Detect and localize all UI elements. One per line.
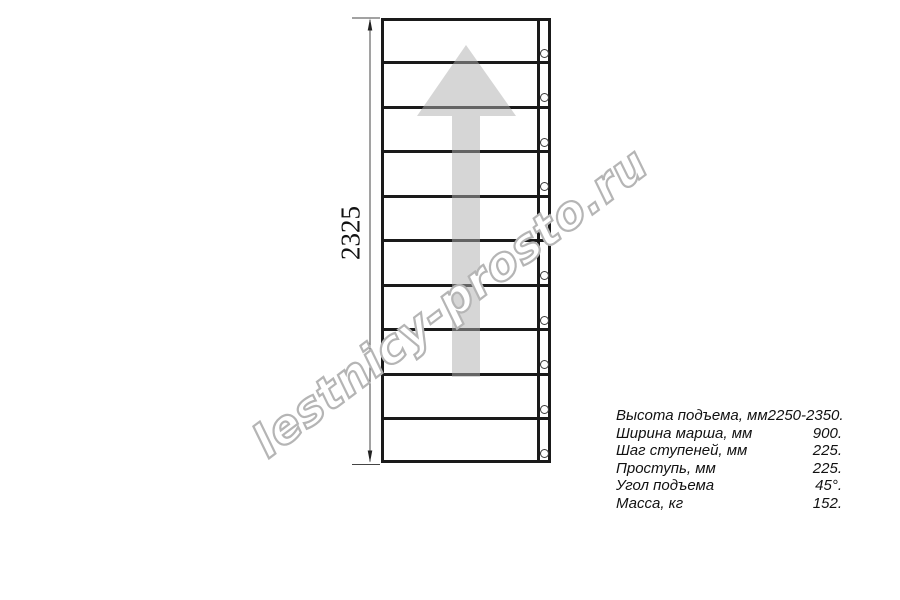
spec-row: Ширина марша, мм900. bbox=[616, 425, 842, 443]
stringer-hole-icon bbox=[540, 316, 549, 325]
spec-value: 225. bbox=[813, 460, 842, 478]
tread-line bbox=[384, 150, 548, 153]
spec-row: Масса, кг152. bbox=[616, 495, 842, 513]
tread-line bbox=[384, 106, 548, 109]
stringer-hole-icon bbox=[540, 93, 549, 102]
dimension-label: 2325 bbox=[336, 206, 367, 260]
spec-row: Шаг ступеней, мм225. bbox=[616, 442, 842, 460]
spec-value: 2250-2350. bbox=[768, 407, 844, 425]
spec-label: Высота подъема, мм bbox=[616, 407, 768, 425]
spec-label: Масса, кг bbox=[616, 495, 683, 513]
tread-line bbox=[384, 195, 548, 198]
spec-value: 900. bbox=[813, 425, 842, 443]
tread-line bbox=[384, 61, 548, 64]
stringer-hole-icon bbox=[540, 49, 549, 58]
spec-label: Ширина марша, мм bbox=[616, 425, 752, 443]
dimension-arrowhead-bottom bbox=[368, 451, 373, 463]
dimension-arrowhead-top bbox=[368, 19, 373, 31]
spec-row: Высота подъема, мм2250-2350. bbox=[616, 407, 842, 425]
stringer-hole-icon bbox=[540, 405, 549, 414]
spec-value: 225. bbox=[813, 442, 842, 460]
spec-label: Проступь, мм bbox=[616, 460, 716, 478]
tread-line bbox=[384, 417, 548, 420]
stringer-hole-icon bbox=[540, 271, 549, 280]
spec-row: Проступь, мм225. bbox=[616, 460, 842, 478]
stringer-hole-icon bbox=[540, 182, 549, 191]
spec-row: Угол подъема45°. bbox=[616, 477, 842, 495]
spec-value: 152. bbox=[813, 495, 842, 513]
tread-line bbox=[384, 373, 548, 376]
spec-table: Высота подъема, мм2250-2350.Ширина марша… bbox=[616, 407, 842, 512]
drawing-canvas: 2325 lestnicy-prosto.ru Высота подъема, … bbox=[0, 0, 900, 600]
stringer-hole-icon bbox=[540, 360, 549, 369]
spec-label: Угол подъема bbox=[616, 477, 714, 495]
stringer-hole-icon bbox=[540, 449, 549, 458]
stringer-hole-icon bbox=[540, 138, 549, 147]
spec-value: 45°. bbox=[815, 477, 842, 495]
spec-label: Шаг ступеней, мм bbox=[616, 442, 747, 460]
